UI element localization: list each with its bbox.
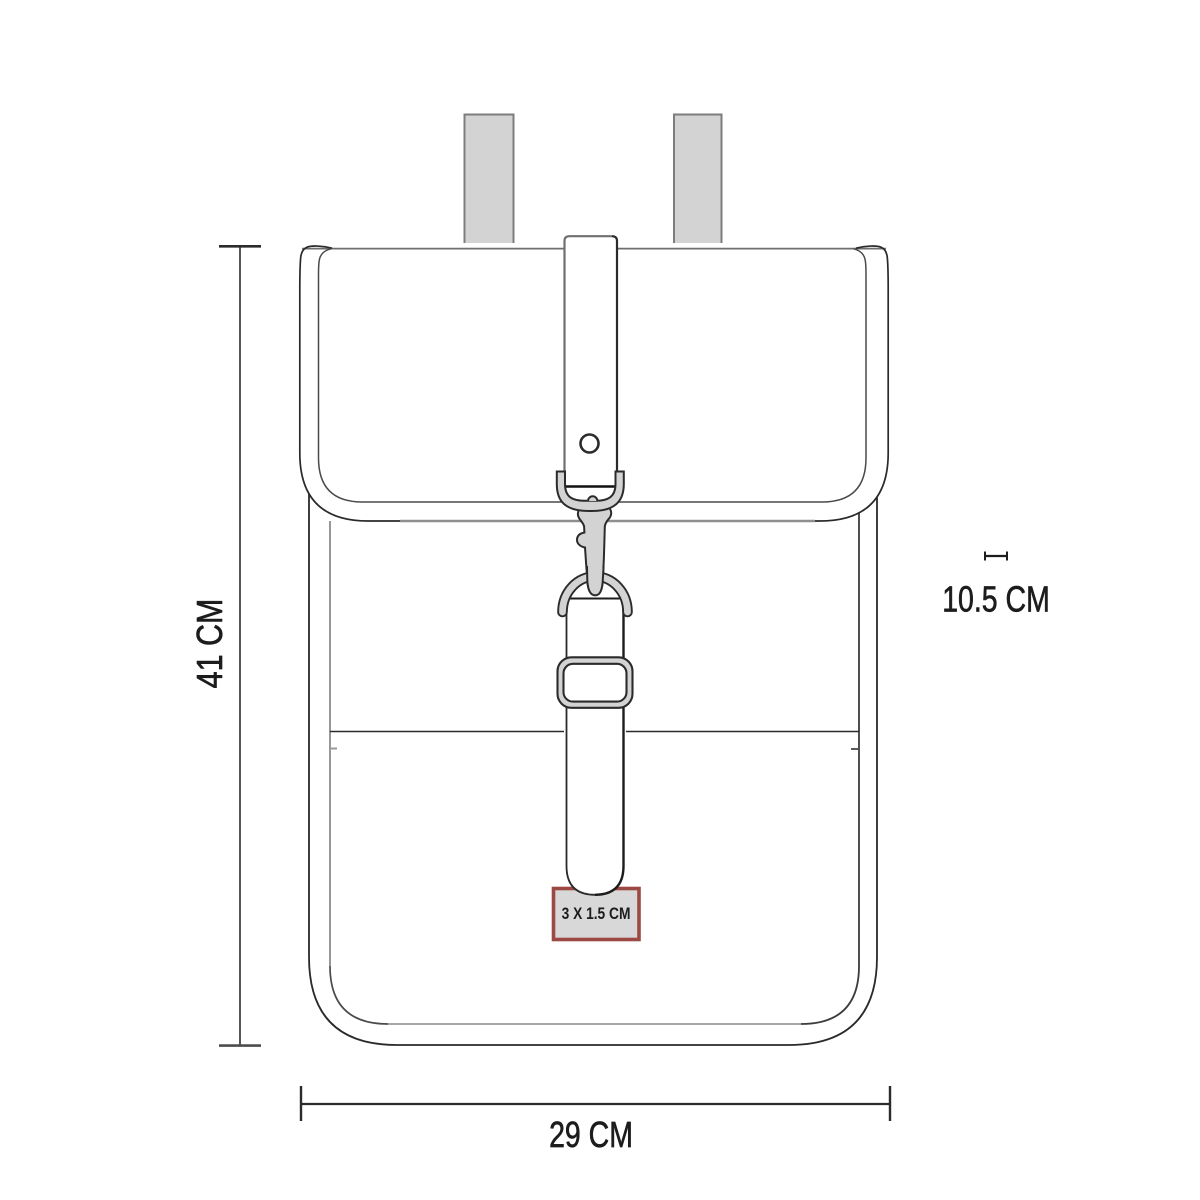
svg-text:41 CM: 41 CM <box>191 599 231 689</box>
svg-text:3 X 1.5 CM: 3 X 1.5 CM <box>562 905 631 923</box>
svg-text:29 CM: 29 CM <box>549 1114 633 1155</box>
svg-text:10.5 CM: 10.5 CM <box>942 578 1050 619</box>
